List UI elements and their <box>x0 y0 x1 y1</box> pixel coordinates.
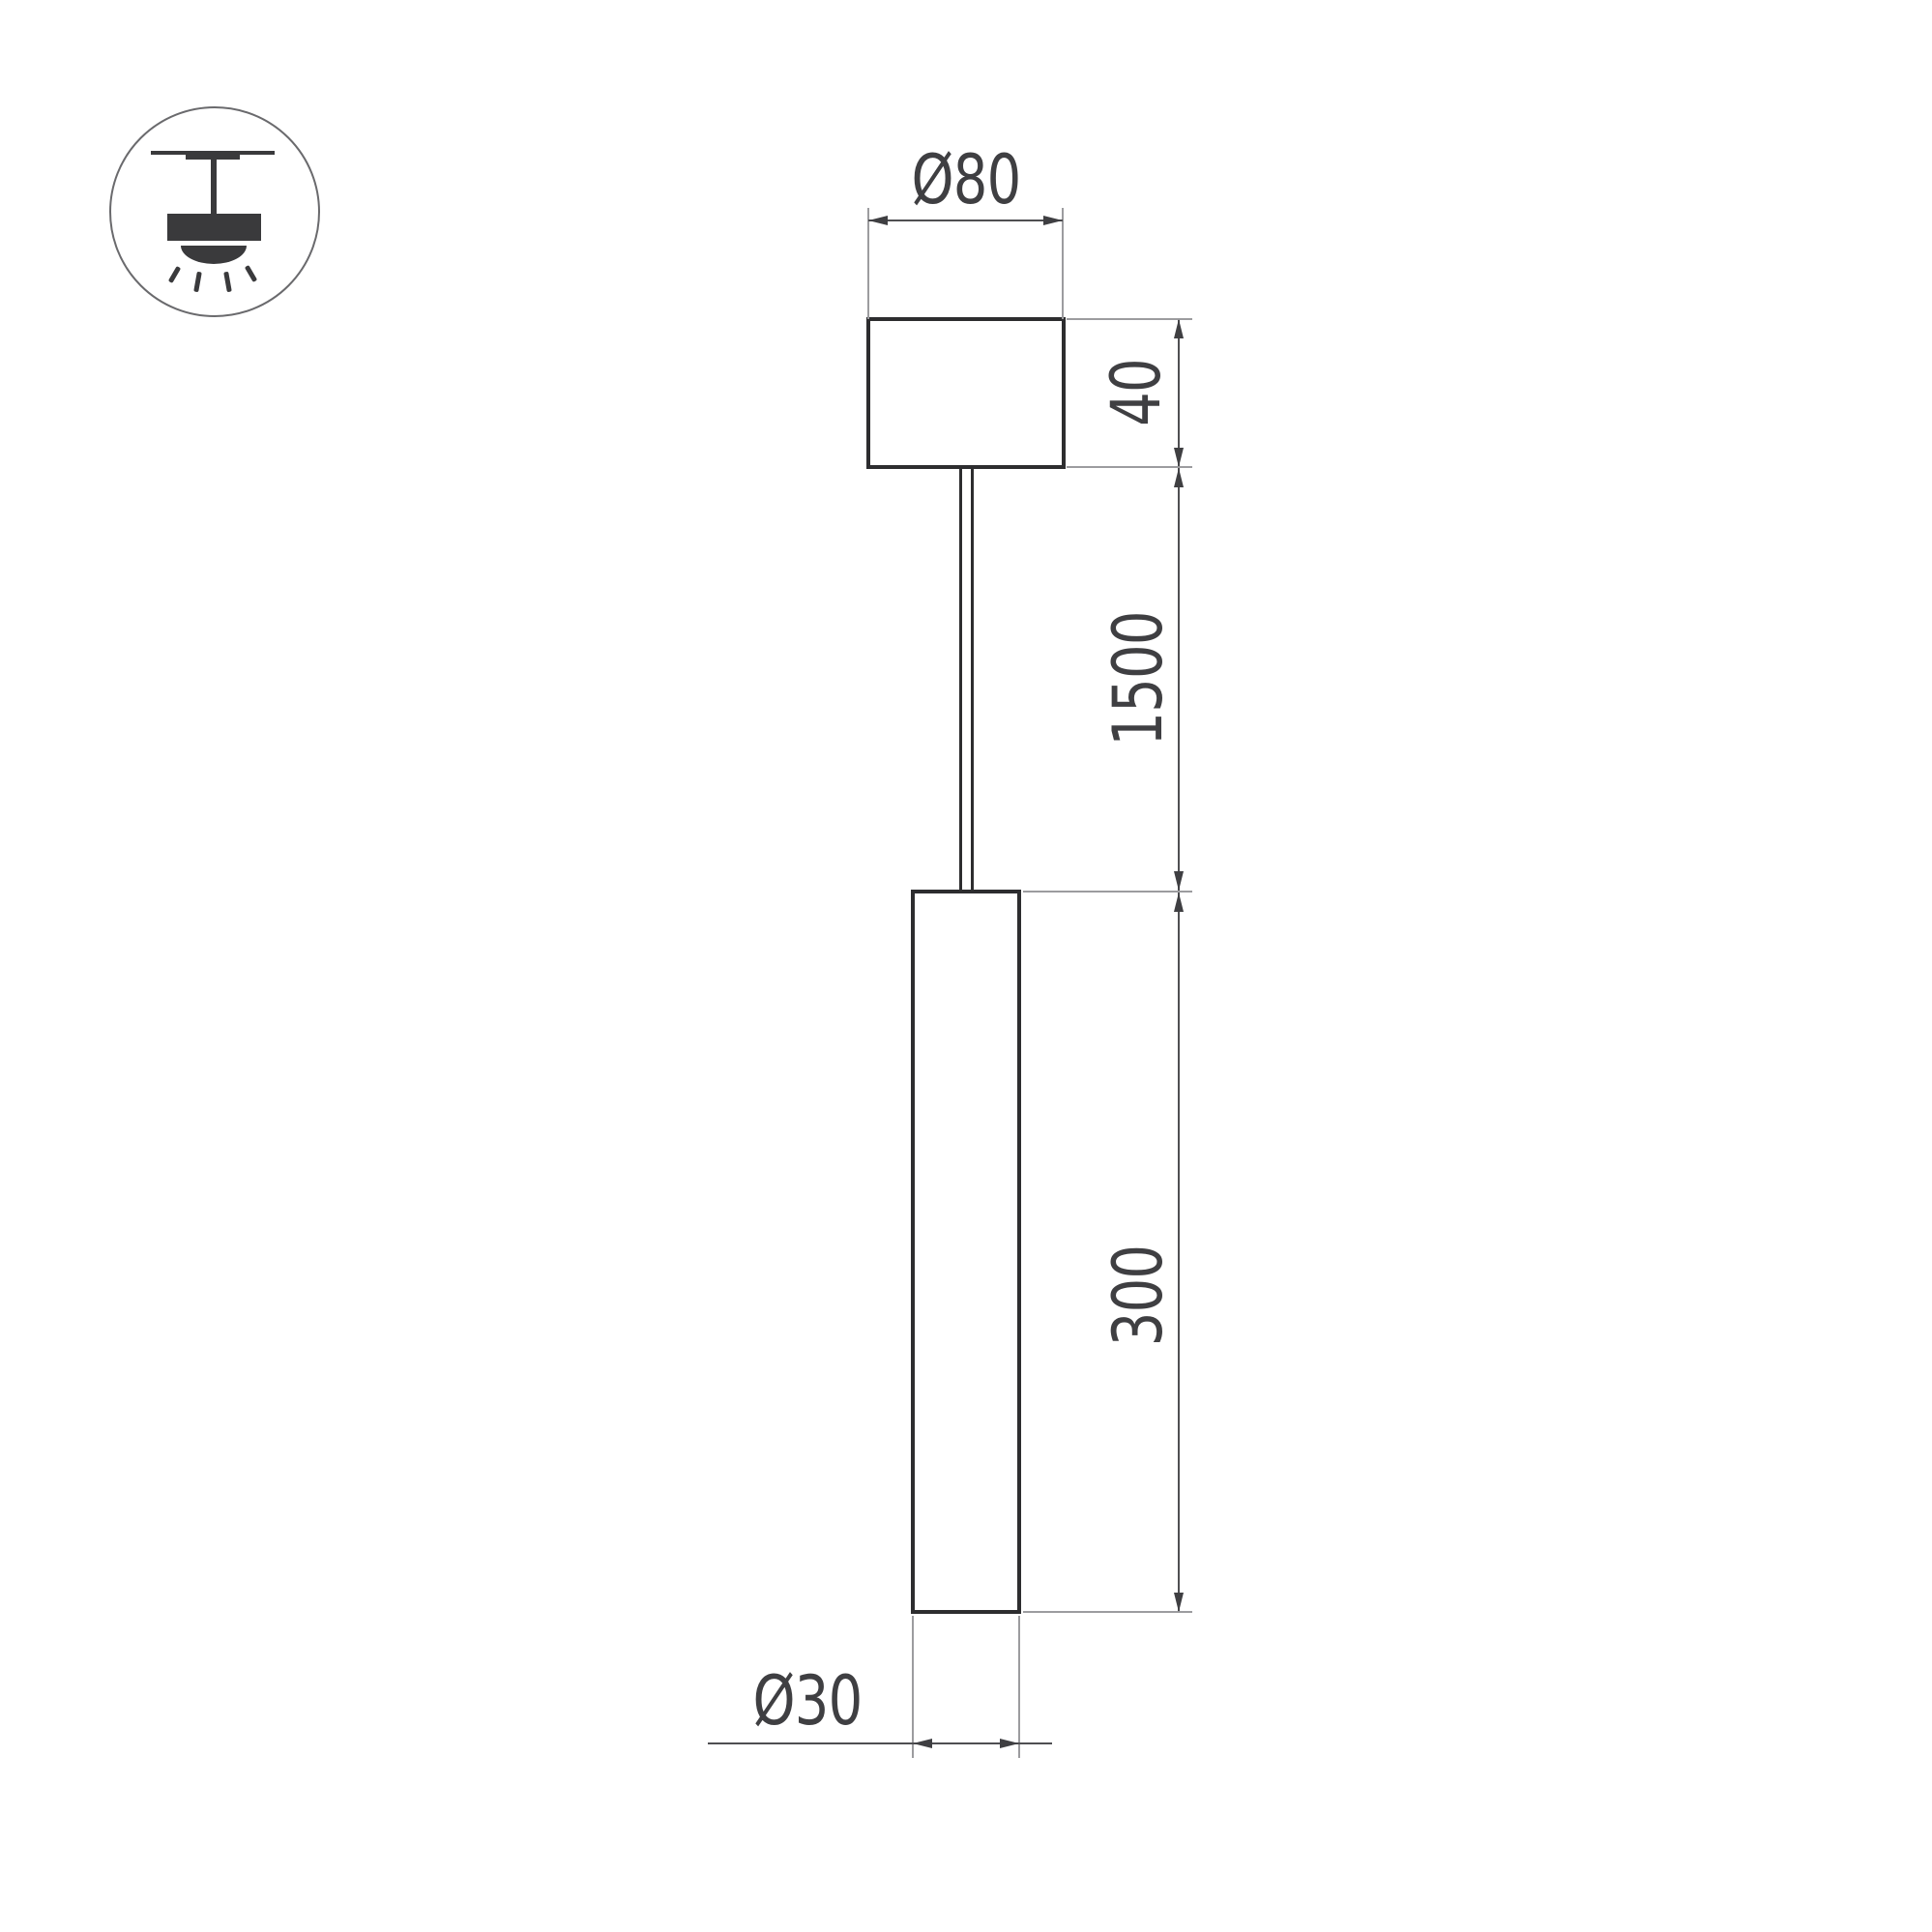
arrowhead-300-top <box>1174 893 1184 912</box>
canopy-diameter-label: Ø80 <box>912 146 1021 214</box>
arrowhead-30-right <box>1000 1739 1019 1748</box>
suspension-length-label: 1500 <box>1104 611 1172 746</box>
tube-length-label: 300 <box>1104 1245 1172 1346</box>
icon-lamp-body <box>167 214 261 241</box>
arrowhead-300-bottom <box>1174 1593 1184 1612</box>
arrowhead-1500-top <box>1174 468 1184 487</box>
tube-diameter-label: Ø30 <box>753 1667 863 1735</box>
icon-suspension-stem <box>211 160 217 214</box>
ext-line-tube-bottom <box>1023 1611 1192 1613</box>
arrowhead-canopy-left <box>868 216 888 225</box>
arrowhead-1500-bottom <box>1174 871 1184 891</box>
suspension-wire <box>959 469 974 892</box>
ext-line-tube-top <box>1023 891 1192 893</box>
ext-line-tube-left <box>912 1616 914 1758</box>
arrowhead-30-left <box>913 1739 932 1748</box>
ext-line-tube-right <box>1018 1616 1020 1758</box>
arrowhead-canopy-right <box>1043 216 1063 225</box>
dim-line-vertical-stack <box>1178 319 1180 1612</box>
canopy-height-label: 40 <box>1102 359 1170 426</box>
arrowhead-40-bottom <box>1174 448 1184 467</box>
arrowhead-40-top <box>1174 319 1184 338</box>
dim-line-canopy-diameter <box>868 220 1063 221</box>
technical-drawing-canvas: Ø80 40 1500 300 Ø30 <box>0 0 1932 1932</box>
canopy-outline <box>866 317 1066 469</box>
tube-outline <box>911 890 1021 1614</box>
